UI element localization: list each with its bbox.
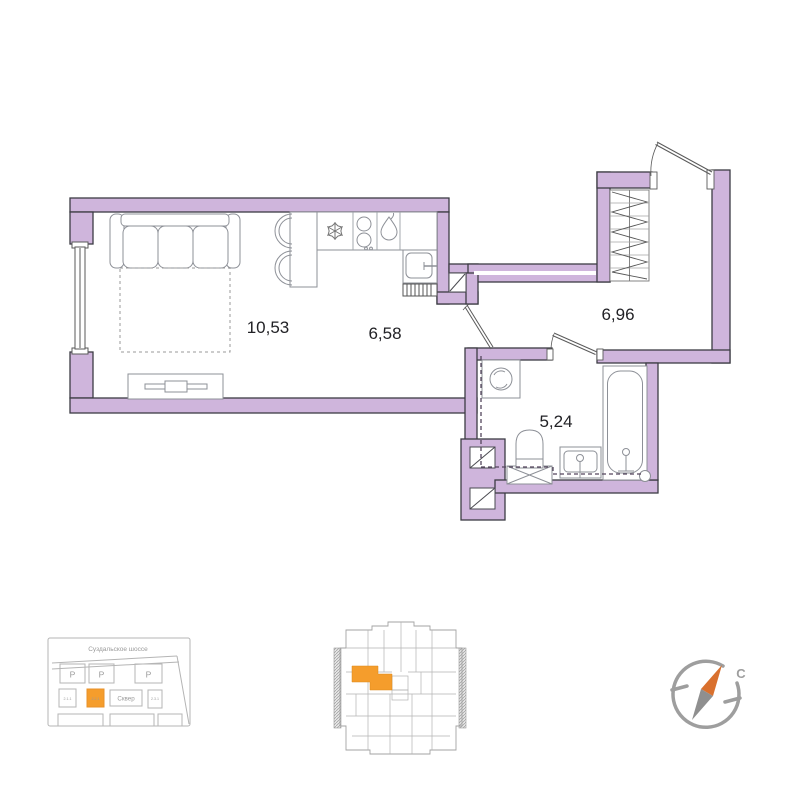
- bathroom-sink: [560, 447, 601, 478]
- living-room-area-label: 10,53: [247, 318, 290, 337]
- hallway-area-label: 6,96: [601, 305, 634, 324]
- kitchen-vent-icon: [449, 273, 466, 292]
- parking-blocks: P P P: [60, 664, 162, 683]
- balcony-strip-right: [459, 648, 466, 728]
- lot-label-3: 2.3.1: [151, 697, 159, 701]
- bar-chairs: [275, 214, 292, 285]
- tv-stand: [128, 374, 223, 399]
- wardrobe: [610, 190, 649, 281]
- doors: [463, 142, 712, 355]
- radiator: [403, 284, 437, 296]
- lot-label-2: 2.2.1: [92, 697, 100, 701]
- kitchen-furniture: [275, 212, 437, 296]
- lot-label-1: 2.1.1: [64, 697, 72, 701]
- livingroom-door: [463, 304, 493, 349]
- bar-table: [290, 212, 317, 287]
- wall-seam: [474, 271, 596, 275]
- kitchen-area-label: 6,58: [368, 324, 401, 343]
- entrance-door: [651, 142, 712, 176]
- compass-needle-icon: [692, 665, 722, 720]
- kitchen-sink: [403, 250, 437, 283]
- building-partitions: [346, 622, 456, 754]
- site-bottom-blocks: [58, 714, 182, 726]
- compass: С: [672, 661, 746, 727]
- bed-outline: [120, 268, 230, 352]
- bathroom-door: [551, 333, 597, 355]
- floorplan-page: 10,53 6,58 6,96 5,24 Суздальское шоссе P…: [0, 0, 800, 800]
- park-label: Сквер: [117, 696, 135, 703]
- living-room-furniture: [110, 214, 240, 399]
- lot-blocks: 2.1.1 2.2.1 Сквер 2.3.1: [59, 689, 162, 708]
- compass-north-label: С: [736, 666, 746, 681]
- apartment-floorplan: 10,53 6,58 6,96 5,24: [70, 142, 730, 520]
- floorplan-canvas: 10,53 6,58 6,96 5,24 Суздальское шоссе P…: [0, 0, 800, 800]
- bathroom-area-label: 5,24: [539, 412, 572, 431]
- highlighted-unit: [352, 666, 392, 690]
- parking-label: P: [146, 670, 152, 680]
- parking-label: P: [99, 670, 105, 680]
- parking-label: P: [70, 670, 76, 680]
- sofa: [110, 214, 240, 268]
- window: [72, 242, 88, 354]
- bathtub: [603, 366, 651, 482]
- building-key-plan: [334, 622, 466, 754]
- site-map: Суздальское шоссе P P P 2.1.1 2.2.1 Скве…: [48, 638, 190, 726]
- washing-machine: [482, 360, 520, 398]
- toilet: [507, 430, 552, 484]
- street-label: Суздальское шоссе: [88, 646, 148, 653]
